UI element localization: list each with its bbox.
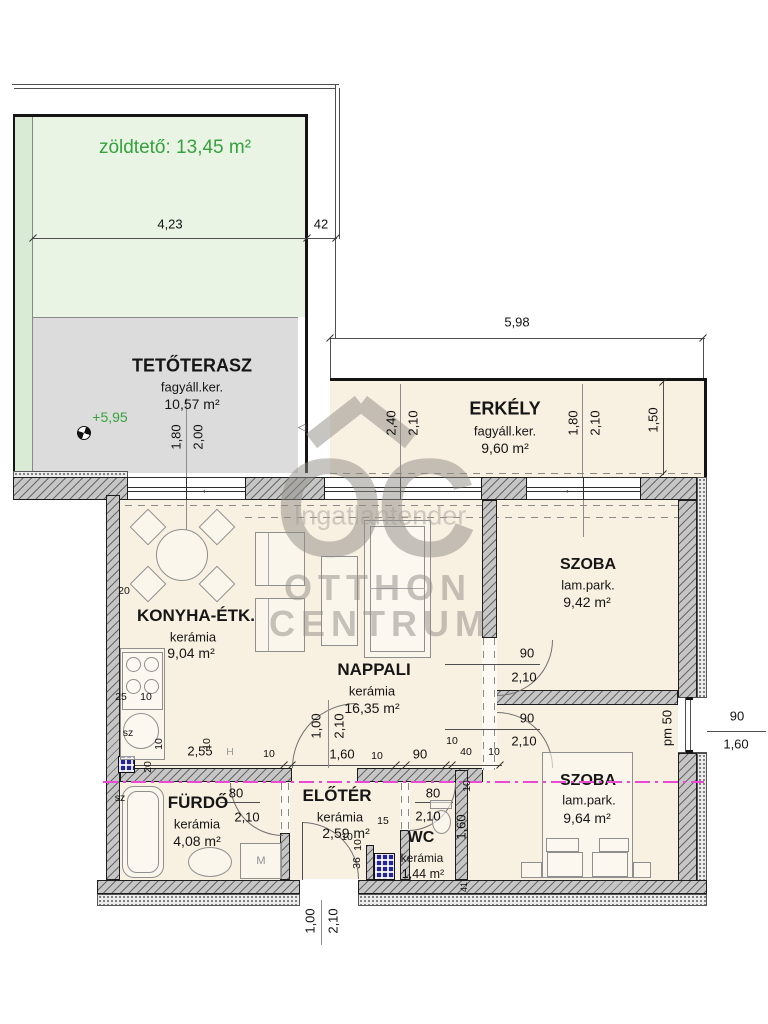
bed-pillow <box>546 838 579 852</box>
insulation <box>697 753 707 893</box>
room-label-konyha: KONYHA-ÉTK. <box>137 606 255 626</box>
room-finish-furdo: kerámia <box>174 817 220 832</box>
room-finish-konyha: kerámia <box>170 630 216 645</box>
roof-edge-line <box>13 114 307 117</box>
window <box>128 477 245 500</box>
dim-ext-line <box>328 700 329 768</box>
room-area-tetoterasz: 10,57 m² <box>164 396 219 412</box>
room-label-erkely: ERKÉLY <box>469 399 540 420</box>
wall-left <box>106 495 120 880</box>
dining-table <box>156 529 208 581</box>
watermark-line2: CENTRUM <box>269 603 491 645</box>
bed-cushion <box>547 852 583 877</box>
room-finish-eloter: kerámia <box>317 810 363 825</box>
dim-line <box>445 729 540 730</box>
dim-ext-line <box>321 900 322 945</box>
room-area-eloter: 2,59 m² <box>322 825 369 841</box>
bed-pillow <box>599 838 629 852</box>
room-finish-tetoterasz: fagyáll.ker. <box>161 380 223 395</box>
room-area-szoba-felso: 9,42 m² <box>563 594 610 610</box>
room-label-szoba-felso: SZOBA <box>560 556 616 574</box>
wall-bottom <box>97 880 300 894</box>
window-mullion <box>186 478 187 499</box>
stove-burner <box>144 679 159 694</box>
boundary-line <box>335 84 336 339</box>
level-label: +5,95 <box>92 409 127 425</box>
entrance-door-leaf <box>302 822 303 880</box>
window-mullion <box>583 478 584 499</box>
room-label-tetoterasz: TETŐTERASZ <box>132 356 252 377</box>
section-line <box>103 781 704 783</box>
wall-bottom <box>358 880 707 894</box>
room-area-wc: 1,44 m² <box>402 867 444 881</box>
room-label-zoldteto: zöldtető: 13,45 m² <box>99 137 251 159</box>
door-dashed-jamb <box>483 638 484 770</box>
room-area-furdo: 4,08 m² <box>173 833 220 849</box>
dim-label: 90 <box>730 709 744 724</box>
roof-edge-line <box>305 114 308 473</box>
wall-south-nappali <box>120 768 292 782</box>
wall-right <box>678 753 697 893</box>
washing-machine-label: M <box>256 855 265 867</box>
floor-plan: ← → → ◁ <box>0 0 768 1024</box>
boundary-line <box>12 84 339 85</box>
toilet-tank <box>430 800 452 809</box>
wall-segment <box>640 477 697 500</box>
stove-burner <box>144 657 159 672</box>
dim-ext-line <box>330 338 331 378</box>
insulation <box>97 894 300 906</box>
door-dashed-jamb <box>288 783 289 833</box>
dim-label: 5,98 <box>504 315 529 330</box>
dim-label: 1,60 <box>723 737 748 752</box>
wall-stub <box>366 845 374 880</box>
room-label-furdo: FÜRDŐ <box>168 793 228 813</box>
dim-ext-line <box>703 338 704 378</box>
wall-right <box>678 500 697 698</box>
window-glass <box>685 698 686 753</box>
window-glass <box>690 698 691 753</box>
slide-arrow-right-icon: → <box>559 482 572 497</box>
stove-burner <box>126 657 141 672</box>
door-dashed-jamb <box>401 783 402 830</box>
insulation <box>358 894 707 906</box>
boundary-line <box>14 88 335 89</box>
room-finish-nappali: kerámia <box>349 684 395 699</box>
kitchen-sink <box>123 713 159 749</box>
slide-arrow-left-icon: ← <box>201 482 214 497</box>
window-axis <box>583 500 584 537</box>
dim-label: 2,10 <box>326 908 341 933</box>
washbasin <box>188 847 232 877</box>
shaft-box <box>374 853 395 880</box>
balcony-edge <box>330 378 707 381</box>
window-cap <box>686 750 693 753</box>
dim-label: 42 <box>314 217 328 232</box>
room-label-eloter: ELŐTÉR <box>303 786 372 806</box>
roof-terrace-area <box>33 317 298 473</box>
balcony-edge <box>704 378 707 477</box>
boundary-line <box>339 88 340 239</box>
room-area-szoba-also: 9,64 m² <box>563 810 610 826</box>
toilet-bowl <box>432 810 451 834</box>
window-cap <box>686 697 693 700</box>
entrance-opening <box>300 879 358 907</box>
window <box>527 477 640 500</box>
nightstand <box>633 862 651 878</box>
insulation <box>697 477 707 698</box>
window-axis <box>186 500 187 530</box>
stove-burner <box>126 679 141 694</box>
bed-cushion <box>592 852 628 877</box>
green-roof-strip <box>13 116 33 475</box>
room-area-konyha: 9,04 m² <box>167 645 214 661</box>
dim-line <box>33 238 337 239</box>
room-finish-wc: kerámia <box>401 851 444 865</box>
room-finish-szoba-also: lam.park. <box>562 793 615 808</box>
door-dashed-jamb <box>494 638 495 770</box>
dim-label: 1,00 <box>303 908 318 933</box>
dim-line <box>445 664 540 665</box>
window-right <box>678 698 707 753</box>
room-label-nappali: NAPPALI <box>337 660 410 680</box>
room-finish-erkely: fagyáll.ker. <box>474 424 536 439</box>
room-finish-szoba-felso: lam.park. <box>561 578 614 593</box>
dim-line <box>330 338 705 339</box>
watermark-backdrop-text: Ingatlantender <box>294 501 467 532</box>
wall-eloter-szoba <box>455 770 468 880</box>
dim-line <box>707 731 766 732</box>
wall-segment <box>481 477 527 500</box>
dim-line <box>663 381 664 475</box>
room-area-erkely: 9,60 m² <box>481 440 528 456</box>
armchair-back <box>268 533 269 585</box>
bathtub-inner <box>127 791 159 873</box>
nightstand <box>521 862 542 878</box>
room-label-wc: WC <box>408 829 435 847</box>
dim-ext-line <box>582 384 583 477</box>
room-area-nappali: 16,35 m² <box>344 700 399 716</box>
roof-edge-line <box>13 114 15 475</box>
